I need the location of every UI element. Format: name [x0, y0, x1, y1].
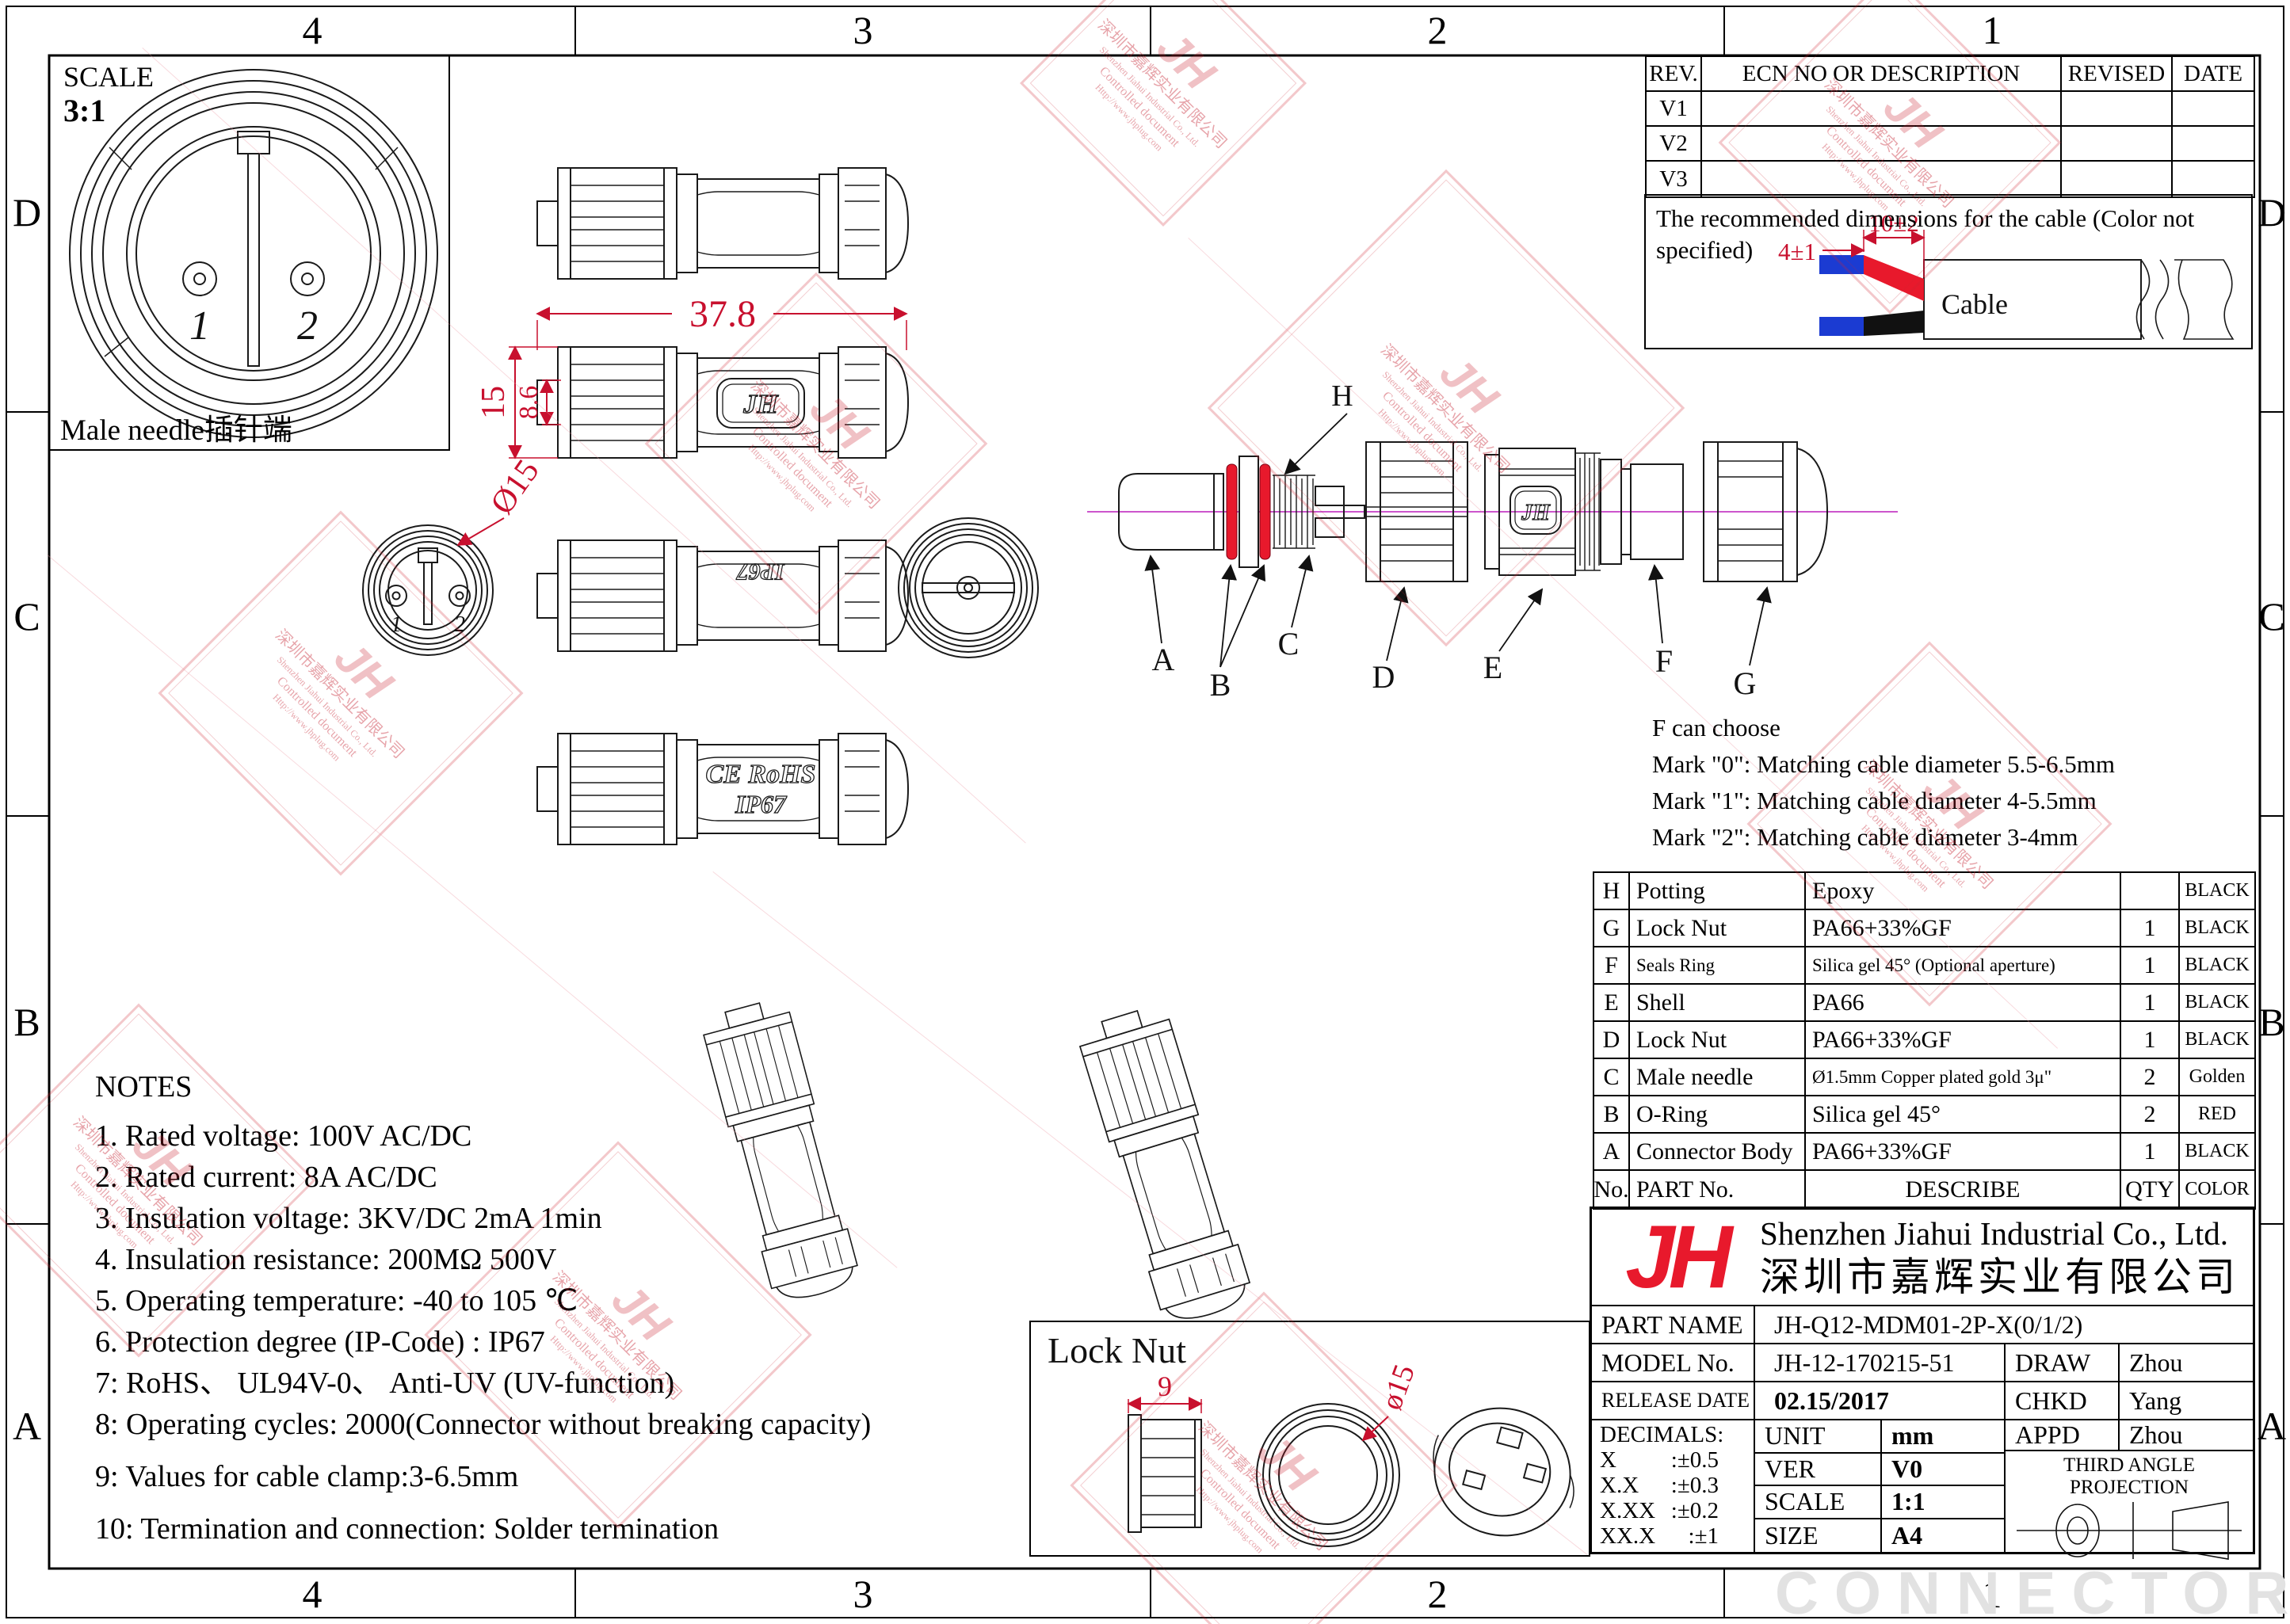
parts-footer-desc: DESCRIBE	[1806, 1171, 2121, 1208]
parts-footer-qty: QTY	[2121, 1171, 2180, 1208]
company-header: JH Shenzhen Jiahui Industrial Co., Ltd. …	[1592, 1209, 2253, 1306]
svg-text:F: F	[1655, 643, 1673, 679]
model-value: JH-12-170215-51	[1755, 1344, 2006, 1381]
decimal-val: :±0.2	[1671, 1498, 1719, 1523]
part-qty: 1	[2121, 985, 2180, 1022]
note-item: 10: Termination and connection: Solder t…	[95, 1508, 871, 1550]
unit-value: mm	[1882, 1420, 2004, 1452]
size-label: SIZE	[1755, 1519, 1882, 1553]
cable-label: Cable	[1941, 288, 2008, 320]
note-item: 9: Values for cable clamp:3-6.5mm	[95, 1456, 871, 1497]
part-name-label: PART NAME	[1592, 1306, 1755, 1343]
rev-cell-empty	[2173, 92, 2254, 127]
zone-row-b-right: B	[2258, 999, 2284, 1045]
svg-text:A: A	[1152, 642, 1175, 677]
decimal-key: XX.X	[1600, 1523, 1655, 1549]
svg-text:D: D	[1372, 659, 1395, 695]
part-desc: PA66	[1806, 985, 2121, 1022]
part-name: Lock Nut	[1630, 910, 1806, 947]
part-name: Male needle	[1630, 1059, 1806, 1096]
svg-text:B: B	[1210, 667, 1231, 703]
decimal-key: X	[1600, 1447, 1616, 1473]
decimal-key: X.X	[1600, 1473, 1639, 1498]
scale-value: 3:1	[63, 92, 105, 129]
part-desc: Epoxy	[1806, 873, 2121, 910]
rev-cell-empty	[1702, 127, 2062, 162]
part-no: E	[1594, 985, 1630, 1022]
svg-text:1: 1	[391, 612, 402, 637]
note-item: 2. Rated current: 8A AC/DC	[95, 1157, 871, 1198]
zone-col-3-top: 3	[853, 7, 873, 53]
part-qty: 1	[2121, 910, 2180, 947]
scale-row-value: 1:1	[1882, 1486, 2004, 1518]
ip67-mark: IP67	[735, 790, 788, 818]
decimal-val: :±1	[1689, 1523, 1719, 1549]
rev-cell-empty	[1702, 92, 2062, 127]
scale-row-label: SCALE	[1755, 1486, 1882, 1518]
part-name: Seals Ring	[1630, 947, 1806, 985]
cable-note-text: The recommended dimensions for the cable…	[1656, 203, 2242, 266]
part-color: BLACK	[2180, 910, 2254, 947]
decimals-block: DECIMALS: X:±0.5 X.X:±0.3 X.XX:±0.2 XX.X…	[1592, 1420, 1755, 1552]
decimal-key: X.XX	[1600, 1498, 1655, 1523]
rev-cell-empty	[2062, 162, 2173, 196]
revision-table: REV. ECN NO OR DESCRIPTION REVISED DATE …	[1645, 55, 2255, 198]
part-name: Lock Nut	[1630, 1022, 1806, 1059]
zone-col-1-top: 1	[1983, 7, 2002, 53]
exploded-view: JH H A B C D E F G	[1087, 379, 1898, 703]
part-name: Connector Body	[1630, 1134, 1806, 1171]
note-item: 4. Insulation resistance: 200MΩ 500V	[95, 1239, 871, 1280]
f-choose-line: Mark "0": Matching cable diameter 5.5-6.…	[1652, 746, 2115, 783]
ip67-top-mark: IP67	[736, 558, 785, 585]
svg-text:2: 2	[454, 612, 465, 637]
size-value: A4	[1882, 1519, 2004, 1553]
part-qty: 1	[2121, 1134, 2180, 1171]
part-no: B	[1594, 1096, 1630, 1134]
locknut-title: Lock Nut	[1048, 1330, 1186, 1370]
ce-rohs-mark: CE RoHS	[706, 760, 816, 789]
zone-row-a-left: A	[13, 1403, 41, 1449]
part-no: A	[1594, 1134, 1630, 1171]
company-name-cn: 深圳市嘉辉实业有限公司	[1760, 1253, 2253, 1301]
part-qty: 2	[2121, 1096, 2180, 1134]
front-view-caption: Male needle插针端	[60, 406, 292, 448]
dim-length: 37.8	[689, 293, 756, 335]
part-qty: 2	[2121, 1059, 2180, 1096]
part-name: O-Ring	[1630, 1096, 1806, 1134]
decimal-val: :±0.5	[1671, 1447, 1719, 1473]
part-name: Shell	[1630, 985, 1806, 1022]
front-view-pins: 1 2	[363, 525, 493, 655]
part-desc: PA66+33%GF	[1806, 910, 2121, 947]
appd-value: Zhou	[2120, 1420, 2253, 1450]
pin2-label: 2	[297, 303, 318, 349]
third-angle-projection-icon	[2006, 1499, 2253, 1562]
release-date-label: RELEASE DATE	[1592, 1382, 1755, 1419]
part-name-value: JH-Q12-MDM01-2P-X(0/1/2)	[1755, 1306, 2253, 1343]
decimals-label: DECIMALS:	[1600, 1422, 1746, 1447]
note-item: 1. Rated voltage: 100V AC/DC	[95, 1115, 871, 1157]
zone-row-d-left: D	[13, 189, 41, 235]
note-item: 5. Operating temperature: -40 to 105 ℃	[95, 1280, 871, 1321]
draw-value: Zhou	[2120, 1344, 2253, 1381]
ver-label: VER	[1755, 1454, 1882, 1485]
o-ring-1	[1227, 464, 1237, 559]
rev-header: ECN NO OR DESCRIPTION	[1702, 57, 2062, 92]
part-no: F	[1594, 947, 1630, 985]
rev-cell-empty	[2173, 162, 2254, 196]
locknut-box: Lock Nut 9	[1030, 1321, 1591, 1556]
dim-inner-height: 8.6	[514, 386, 544, 420]
zone-col-2-top: 2	[1428, 7, 1448, 53]
part-color: BLACK	[2180, 1022, 2254, 1059]
zone-col-2-bottom: 2	[1428, 1571, 1448, 1617]
part-name: Potting	[1630, 873, 1806, 910]
svg-text:H: H	[1331, 379, 1353, 413]
locknut-dim-w: 9	[1158, 1370, 1172, 1402]
rev-header: REVISED	[2062, 57, 2173, 92]
wire-black	[1864, 311, 1924, 336]
f-choose-line: Mark "2": Matching cable diameter 3-4mm	[1652, 819, 2115, 856]
part-color: BLACK	[2180, 873, 2254, 910]
part-color: BLACK	[2180, 1134, 2254, 1171]
f-choose-note: F can choose Mark "0": Matching cable di…	[1652, 710, 2115, 856]
part-desc: Silica gel 45° (Optional aperture)	[1806, 947, 2121, 985]
part-no: C	[1594, 1059, 1630, 1096]
dimensions: 37.8 15 8.6 Ø15	[458, 293, 906, 545]
rev-header: REV.	[1647, 57, 1702, 92]
unit-label: UNIT	[1755, 1420, 1882, 1452]
zone-row-d-right: D	[2258, 189, 2286, 235]
svg-text:E: E	[1483, 650, 1502, 685]
zone-col-4-top: 4	[303, 7, 323, 53]
part-no: D	[1594, 1022, 1630, 1059]
part-desc: PA66+33%GF	[1806, 1134, 2121, 1171]
decimal-val: :±0.3	[1671, 1473, 1719, 1498]
model-label: MODEL No.	[1592, 1344, 1755, 1381]
wire-tip-blue-2	[1819, 317, 1864, 336]
zone-row-c-right: C	[2258, 593, 2284, 639]
svg-text:G: G	[1734, 665, 1757, 701]
rev-cell-empty	[2173, 127, 2254, 162]
pin1-label: 1	[189, 303, 210, 349]
f-choose-line: Mark "1": Matching cable diameter 4-5.5m…	[1652, 783, 2115, 819]
scale-label: SCALE	[63, 60, 154, 93]
rev-header: DATE	[2173, 57, 2254, 92]
chkd-label: CHKD	[2006, 1382, 2120, 1419]
part-qty	[2121, 873, 2180, 910]
zone-row-b-left: B	[13, 999, 40, 1045]
company-name-en: Shenzhen Jiahui Industrial Co., Ltd.	[1760, 1214, 2253, 1253]
note-item: 8: Operating cycles: 2000(Connector with…	[95, 1404, 871, 1445]
front-view-large: 1 2	[70, 70, 437, 437]
drawing-sheet: 1 2 JH IP67 CE RoHS IP67	[0, 0, 2290, 1624]
part-desc: PA66+33%GF	[1806, 1022, 2121, 1059]
parts-footer-no: No.	[1594, 1171, 1630, 1208]
rev-cell-empty	[2062, 127, 2173, 162]
rev-row-label: V1	[1647, 92, 1702, 127]
release-date-value: 02.15/2017	[1755, 1382, 2006, 1419]
zone-col-4-bottom: 4	[303, 1571, 323, 1617]
part-color: BLACK	[2180, 947, 2254, 985]
ver-value: V0	[1882, 1454, 2004, 1485]
side-views: JH IP67 CE RoHS IP67	[537, 168, 908, 844]
note-item: 3. Insulation voltage: 3KV/DC 2mA 1min	[95, 1198, 871, 1239]
note-item: 6. Protection degree (IP-Code) : IP67	[95, 1321, 871, 1363]
jh-logo: JH	[1592, 1213, 1760, 1302]
note-item: 7: RoHS、 UL94V-0、 Anti-UV (UV-function)	[95, 1363, 871, 1404]
appd-label: APPD	[2006, 1420, 2120, 1450]
dim-height: 15	[475, 386, 512, 419]
part-desc: Silica gel 45°	[1806, 1096, 2121, 1134]
part-no: G	[1594, 910, 1630, 947]
front-view-plain	[899, 518, 1038, 658]
zone-row-c-left: C	[13, 593, 40, 639]
rev-row-label: V2	[1647, 127, 1702, 162]
notes-block: NOTES 1. Rated voltage: 100V AC/DC 2. Ra…	[95, 1066, 871, 1550]
part-color: Golden	[2180, 1059, 2254, 1096]
rev-row-label: V3	[1647, 162, 1702, 196]
svg-text:C: C	[1278, 626, 1300, 661]
part-desc: Ø1.5mm Copper plated gold 3μ"	[1806, 1059, 2121, 1096]
parts-footer-color: COLOR	[2180, 1171, 2254, 1208]
title-block: JH Shenzhen Jiahui Industrial Co., Ltd. …	[1590, 1207, 2255, 1554]
zone-col-3-bottom: 3	[853, 1571, 873, 1617]
connector-watermark: CONNECTOR	[1775, 1559, 2290, 1624]
jh-mark-view2: JH	[742, 390, 779, 419]
projection-label: THIRD ANGLE PROJECTION	[2006, 1451, 2253, 1499]
part-color: BLACK	[2180, 985, 2254, 1022]
zone-row-a-right: A	[2258, 1403, 2286, 1449]
unit-ver-scale-size: UNITmm VERV0 SCALE1:1 SIZEA4	[1755, 1420, 2006, 1552]
parts-table: H Potting Epoxy BLACK G Lock Nut PA66+33…	[1593, 871, 2256, 1210]
rev-cell-empty	[1702, 162, 2062, 196]
part-qty: 1	[2121, 947, 2180, 985]
rev-cell-empty	[2062, 92, 2173, 127]
notes-title: NOTES	[95, 1066, 871, 1107]
f-choose-line: F can choose	[1652, 710, 2115, 746]
o-ring-2	[1260, 464, 1270, 559]
part-qty: 1	[2121, 1022, 2180, 1059]
draw-label: DRAW	[2006, 1344, 2120, 1381]
jh-mark-exploded: JH	[1521, 501, 1551, 525]
part-color: RED	[2180, 1096, 2254, 1134]
part-no: H	[1594, 873, 1630, 910]
dim-front-dia: Ø15	[484, 453, 547, 521]
chkd-value: Yang	[2120, 1382, 2253, 1419]
parts-footer-part: PART No.	[1630, 1171, 1806, 1208]
